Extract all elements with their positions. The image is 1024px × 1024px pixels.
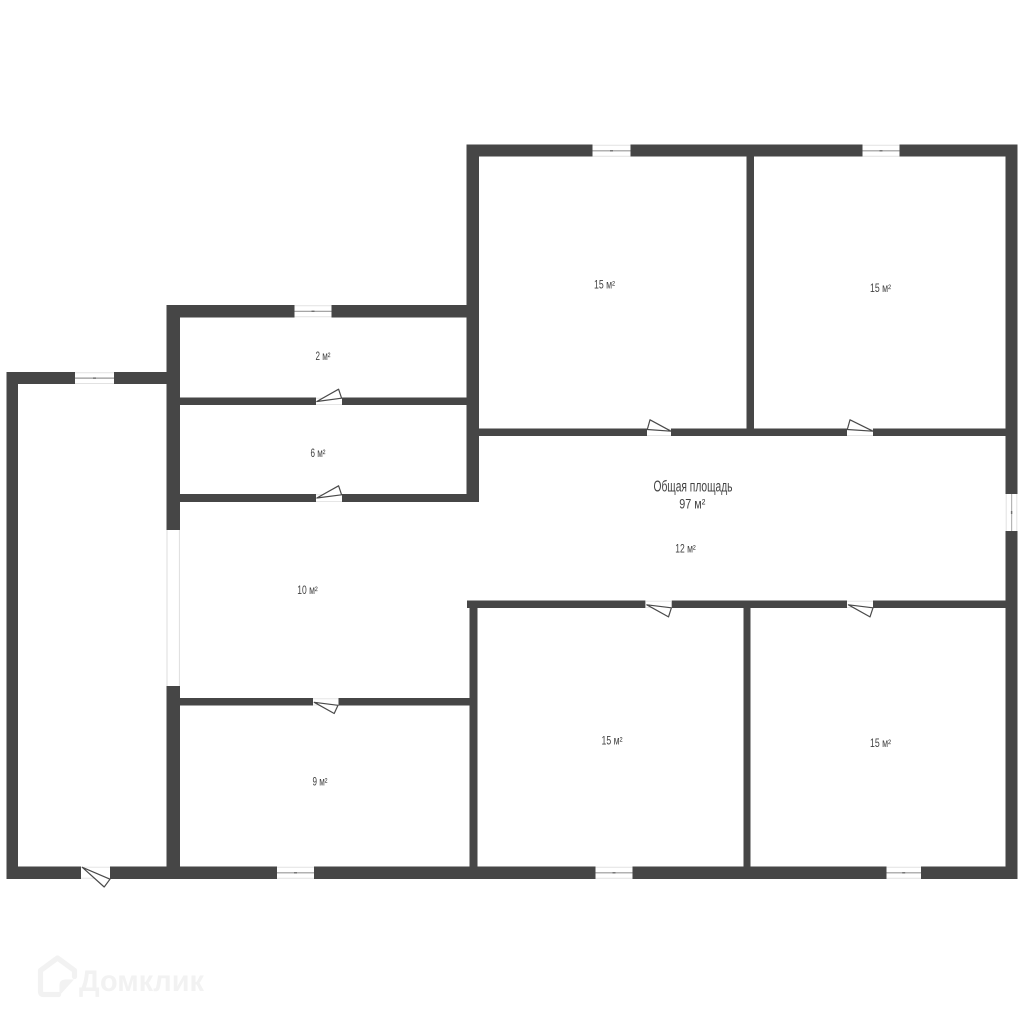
svg-text:15 м²: 15 м² <box>602 736 623 748</box>
svg-text:15 м²: 15 м² <box>870 738 891 750</box>
svg-text:10 м²: 10 м² <box>297 585 318 597</box>
svg-text:2 м²: 2 м² <box>316 351 331 363</box>
svg-text:Общая площадь: Общая площадь <box>654 479 733 496</box>
svg-text:97 м²: 97 м² <box>679 497 705 512</box>
svg-text:6 м²: 6 м² <box>311 448 326 460</box>
svg-text:12 м²: 12 м² <box>675 543 696 555</box>
svg-text:15 м²: 15 м² <box>870 283 891 295</box>
svg-text:Домклик: Домклик <box>79 965 205 998</box>
svg-text:9 м²: 9 м² <box>313 777 328 789</box>
svg-text:15 м²: 15 м² <box>594 280 615 292</box>
